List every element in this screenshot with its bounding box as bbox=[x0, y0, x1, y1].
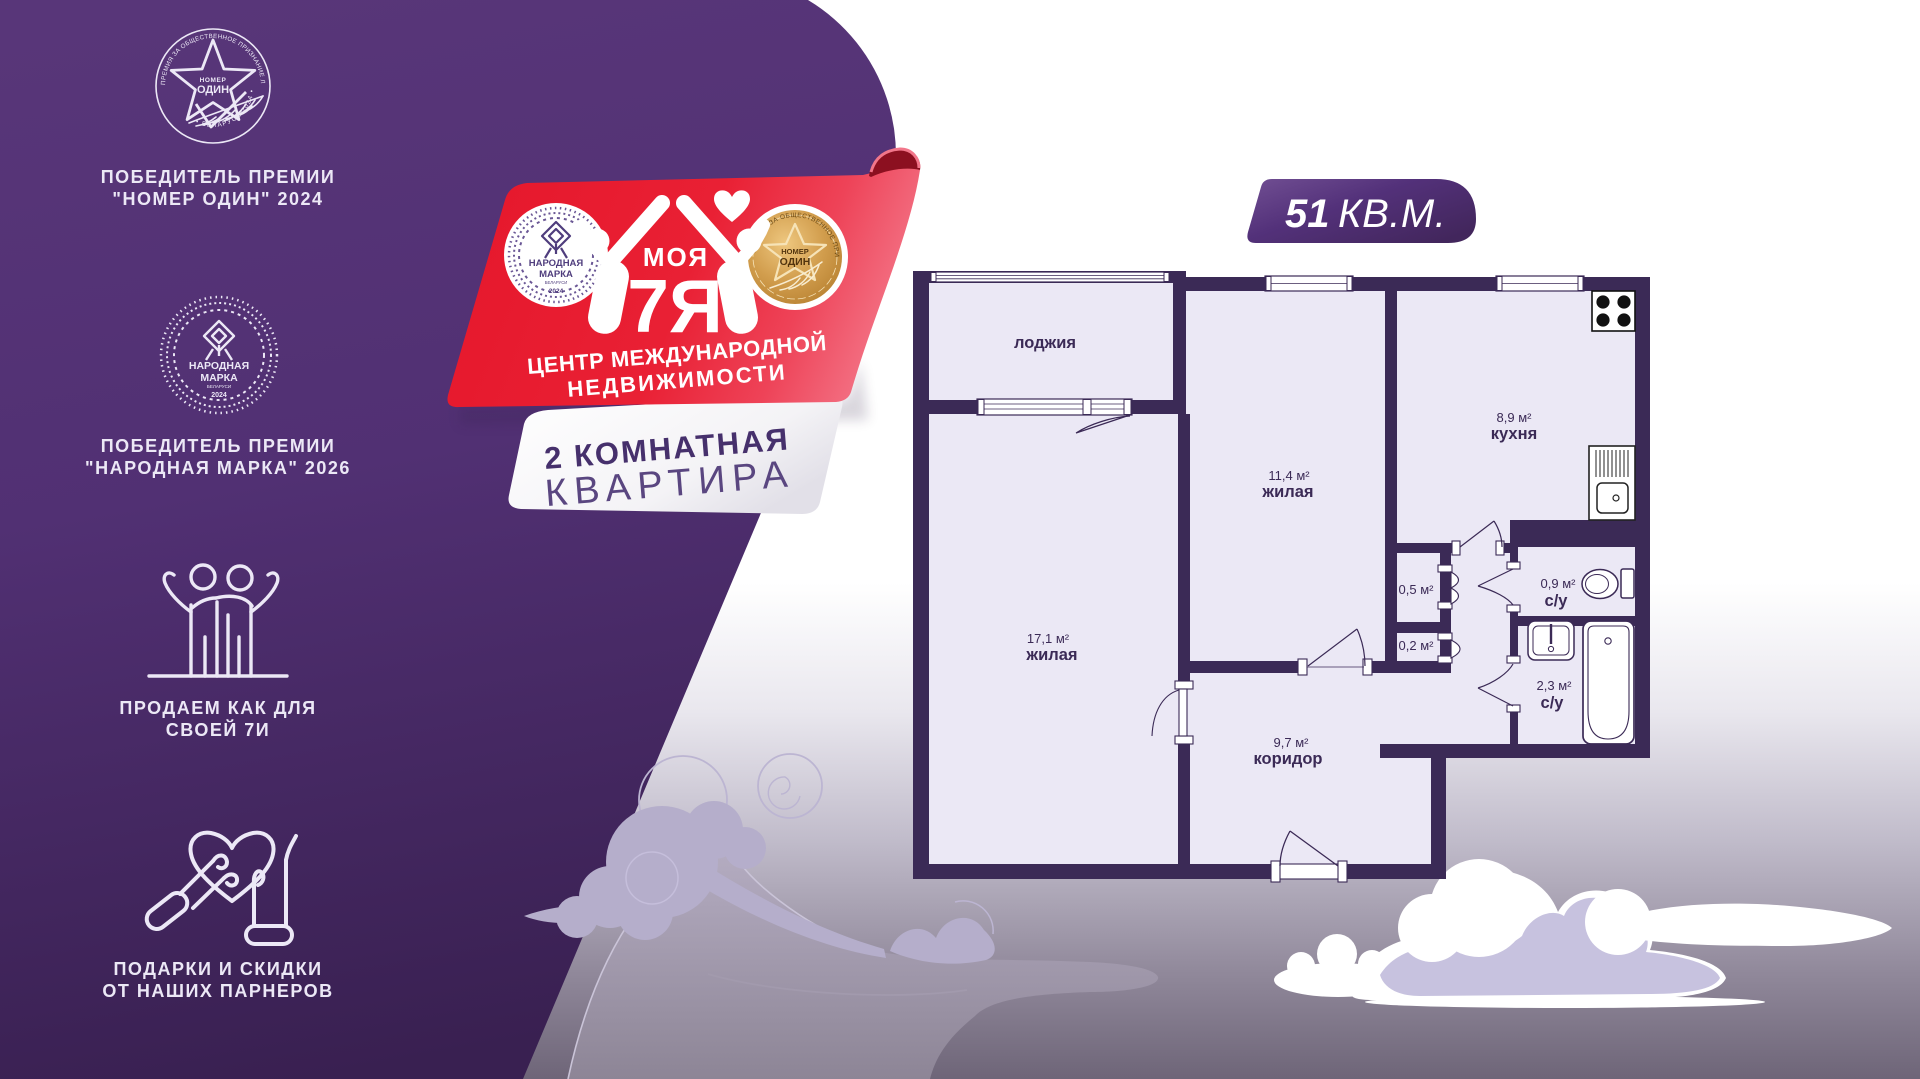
svg-text:ПОДАРКИ И СКИДКИ: ПОДАРКИ И СКИДКИ bbox=[113, 959, 322, 979]
svg-text:0,2 м²: 0,2 м² bbox=[1399, 638, 1435, 653]
svg-text:2024: 2024 bbox=[211, 392, 227, 399]
svg-text:17,1 м²: 17,1 м² bbox=[1027, 631, 1070, 646]
svg-text:0,9 м²: 0,9 м² bbox=[1541, 576, 1577, 591]
svg-text:ОДИН: ОДИН bbox=[780, 256, 811, 268]
svg-text:9,7 м²: 9,7 м² bbox=[1274, 735, 1310, 750]
svg-text:кухня: кухня bbox=[1491, 425, 1537, 443]
svg-text:СВОЕЙ 7И: СВОЕЙ 7И bbox=[166, 719, 270, 740]
svg-text:51: 51 bbox=[1285, 192, 1330, 236]
svg-text:ОДИН: ОДИН bbox=[197, 84, 229, 96]
svg-text:лоджия: лоджия bbox=[1014, 334, 1076, 352]
svg-text:КВ.М.: КВ.М. bbox=[1338, 192, 1446, 236]
svg-text:коридор: коридор bbox=[1254, 750, 1323, 768]
svg-text:НАРОДНАЯ: НАРОДНАЯ bbox=[529, 258, 584, 269]
svg-text:МАРКА: МАРКА bbox=[539, 269, 573, 280]
svg-text:МАРКА: МАРКА bbox=[200, 372, 238, 384]
svg-text:ПОБЕДИТЕЛЬ ПРЕМИИ: ПОБЕДИТЕЛЬ ПРЕМИИ bbox=[101, 167, 336, 187]
svg-text:7Я: 7Я bbox=[627, 264, 723, 348]
svg-text:ПОБЕДИТЕЛЬ ПРЕМИИ: ПОБЕДИТЕЛЬ ПРЕМИИ bbox=[101, 436, 336, 456]
svg-text:2024: 2024 bbox=[549, 288, 564, 295]
svg-text:8,9 м²: 8,9 м² bbox=[1497, 410, 1533, 425]
svg-text:с/у: с/у bbox=[1541, 694, 1565, 712]
svg-text:0,5 м²: 0,5 м² bbox=[1399, 582, 1435, 597]
svg-text:с/у: с/у bbox=[1545, 592, 1569, 610]
svg-text:"НОМЕР ОДИН" 2024: "НОМЕР ОДИН" 2024 bbox=[112, 189, 323, 209]
svg-text:НОМЕР: НОМЕР bbox=[781, 247, 809, 256]
svg-text:жилая: жилая bbox=[1025, 646, 1077, 664]
svg-text:жилая: жилая bbox=[1261, 483, 1313, 501]
svg-text:НАРОДНАЯ: НАРОДНАЯ bbox=[189, 360, 249, 372]
svg-text:2,3 м²: 2,3 м² bbox=[1537, 678, 1573, 693]
svg-text:"НАРОДНАЯ МАРКА" 2026: "НАРОДНАЯ МАРКА" 2026 bbox=[85, 458, 351, 478]
svg-text:БЕЛАРУСИ: БЕЛАРУСИ bbox=[545, 280, 567, 285]
svg-text:ПРОДАЕМ КАК ДЛЯ: ПРОДАЕМ КАК ДЛЯ bbox=[119, 698, 316, 718]
svg-text:НОМЕР: НОМЕР bbox=[200, 77, 227, 84]
svg-text:ОТ НАШИХ ПАРНЕРОВ: ОТ НАШИХ ПАРНЕРОВ bbox=[102, 981, 333, 1001]
svg-text:БЕЛАРУСИ: БЕЛАРУСИ bbox=[207, 384, 231, 389]
svg-text:11,4 м²: 11,4 м² bbox=[1268, 468, 1310, 483]
